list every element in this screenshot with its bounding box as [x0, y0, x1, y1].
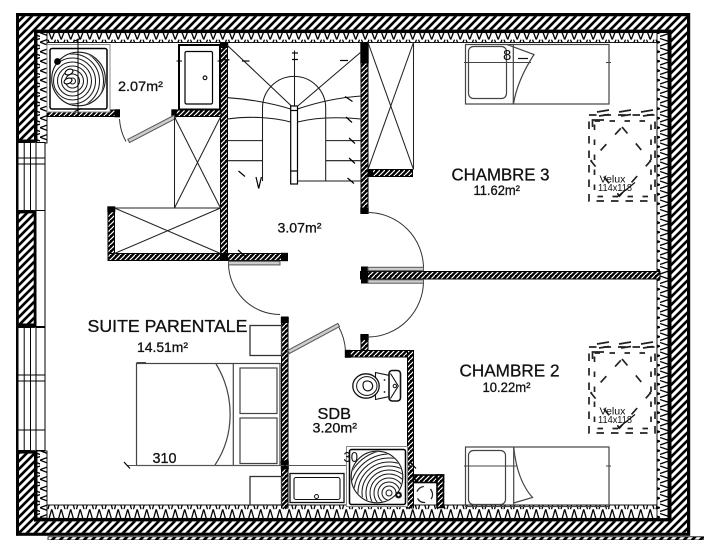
svg-text:11.62m²: 11.62m²: [474, 183, 521, 198]
svg-text:3.07m²: 3.07m²: [278, 220, 322, 236]
svg-text:14.51m²: 14.51m²: [137, 340, 189, 355]
svg-text:SUITE PARENTALE: SUITE PARENTALE: [88, 316, 248, 336]
svg-text:3.20m²: 3.20m²: [313, 421, 358, 436]
svg-text:10.22m²: 10.22m²: [483, 380, 531, 395]
svg-text:2.07m²: 2.07m²: [118, 78, 163, 94]
svg-text:8: 8: [503, 47, 511, 64]
svg-text:CHAMBRE 3: CHAMBRE 3: [452, 165, 550, 185]
svg-text:310: 310: [153, 451, 177, 467]
svg-text:CHAMBRE 2: CHAMBRE 2: [460, 361, 560, 381]
svg-text:30: 30: [344, 450, 359, 466]
